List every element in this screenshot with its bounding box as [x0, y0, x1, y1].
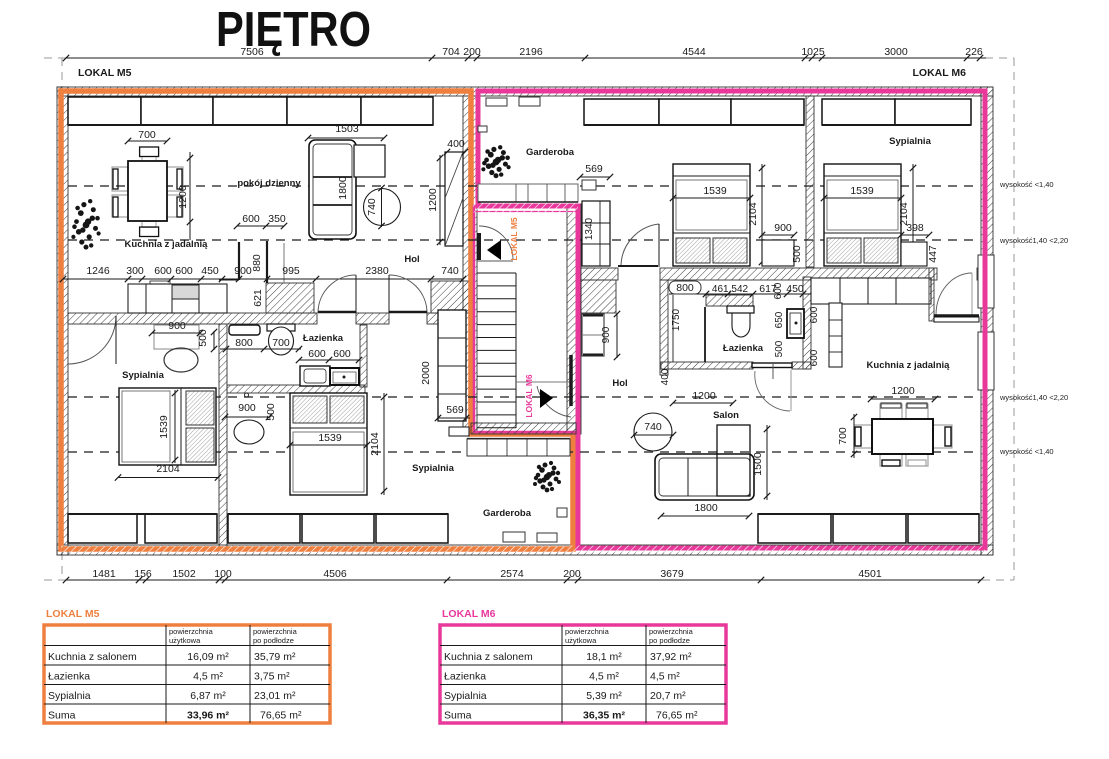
svg-text:2196: 2196 — [519, 46, 543, 58]
svg-text:400: 400 — [447, 138, 465, 150]
svg-text:156: 156 — [134, 568, 152, 580]
svg-text:LOKAL M6: LOKAL M6 — [913, 67, 967, 79]
svg-text:3679: 3679 — [660, 568, 684, 580]
svg-text:Sypialnia: Sypialnia — [122, 370, 164, 381]
svg-text:700: 700 — [837, 427, 849, 445]
svg-text:2574: 2574 — [500, 568, 524, 580]
svg-text:1539: 1539 — [158, 415, 170, 439]
svg-text:Kuchnia z jadalnią: Kuchnia z jadalnią — [867, 360, 951, 371]
svg-text:2104: 2104 — [747, 202, 759, 226]
svg-text:880: 880 — [251, 254, 263, 272]
svg-text:2104: 2104 — [369, 432, 381, 456]
svg-text:wysokość1,40 <2,20: wysokość1,40 <2,20 — [999, 393, 1068, 402]
svg-text:PIĘTRO: PIĘTRO — [216, 3, 371, 57]
svg-text:1025: 1025 — [801, 46, 825, 58]
svg-text:Suma: Suma — [444, 710, 472, 722]
svg-text:1500: 1500 — [752, 452, 764, 476]
svg-text:1481: 1481 — [92, 568, 116, 580]
svg-text:Suma: Suma — [48, 710, 76, 722]
svg-text:4,5 m²: 4,5 m² — [193, 671, 223, 683]
svg-text:1503: 1503 — [335, 123, 359, 135]
svg-text:1539: 1539 — [318, 432, 342, 444]
svg-text:600: 600 — [175, 265, 193, 277]
svg-text:704: 704 — [442, 46, 460, 58]
svg-text:powierzchnia: powierzchnia — [253, 627, 298, 636]
svg-text:900: 900 — [601, 326, 612, 343]
svg-text:wysokość <1,40: wysokość <1,40 — [999, 180, 1054, 189]
svg-text:500: 500 — [265, 403, 277, 421]
svg-text:447: 447 — [927, 245, 939, 263]
svg-text:powierzchnia: powierzchnia — [649, 627, 694, 636]
svg-text:450: 450 — [201, 265, 219, 277]
svg-text:36,35 m²: 36,35 m² — [583, 710, 626, 722]
svg-text:900: 900 — [234, 265, 252, 277]
svg-text:740: 740 — [441, 265, 459, 277]
svg-text:Łazienka: Łazienka — [303, 333, 344, 344]
svg-text:wysokość1,40 <2,20: wysokość1,40 <2,20 — [999, 236, 1068, 245]
svg-text:200: 200 — [563, 568, 581, 580]
svg-text:po podłodze: po podłodze — [253, 636, 294, 645]
svg-text:LOKAL M5: LOKAL M5 — [509, 217, 519, 261]
svg-text:35,79 m²: 35,79 m² — [254, 651, 296, 663]
svg-text:400: 400 — [660, 368, 671, 385]
svg-text:500: 500 — [774, 340, 785, 357]
svg-text:Łazienka: Łazienka — [48, 671, 90, 683]
svg-text:500: 500 — [197, 329, 209, 347]
svg-text:740: 740 — [644, 421, 662, 433]
svg-text:pokój dzienny: pokój dzienny — [237, 178, 301, 189]
svg-text:1246: 1246 — [86, 265, 110, 277]
svg-text:Sypialnia: Sypialnia — [48, 690, 91, 702]
svg-text:Hol: Hol — [612, 378, 627, 389]
svg-text:7506: 7506 — [240, 46, 264, 58]
svg-text:37,92 m²: 37,92 m² — [650, 651, 692, 663]
svg-text:Garderoba: Garderoba — [526, 147, 575, 158]
svg-text:5,39 m²: 5,39 m² — [586, 690, 622, 702]
svg-text:3000: 3000 — [884, 46, 908, 58]
svg-text:po podłodze: po podłodze — [649, 636, 690, 645]
svg-text:1340: 1340 — [584, 217, 595, 240]
svg-text:100: 100 — [214, 568, 232, 580]
svg-text:500: 500 — [791, 245, 803, 263]
svg-text:800: 800 — [676, 282, 694, 294]
svg-text:Łazienka: Łazienka — [723, 343, 764, 354]
svg-text:4544: 4544 — [682, 46, 706, 58]
svg-text:350: 350 — [268, 213, 286, 225]
svg-text:300: 300 — [126, 265, 144, 277]
svg-text:1200: 1200 — [177, 185, 189, 209]
svg-text:1750: 1750 — [671, 308, 682, 331]
svg-text:Łazienka: Łazienka — [444, 671, 486, 683]
svg-text:600: 600 — [242, 213, 260, 225]
svg-text:569: 569 — [446, 404, 464, 416]
svg-text:LOKAL M6: LOKAL M6 — [442, 608, 496, 620]
svg-text:1200: 1200 — [427, 188, 439, 212]
svg-text:1502: 1502 — [172, 568, 196, 580]
svg-text:Garderoba: Garderoba — [483, 508, 532, 519]
svg-text:wysokość <1,40: wysokość <1,40 — [999, 447, 1054, 456]
svg-text:800: 800 — [235, 337, 253, 349]
svg-text:Kuchnia z salonem: Kuchnia z salonem — [48, 651, 137, 663]
svg-text:33,96 m²: 33,96 m² — [187, 710, 230, 722]
svg-text:23,01 m²: 23,01 m² — [254, 690, 296, 702]
svg-text:20,7 m²: 20,7 m² — [650, 690, 686, 702]
svg-text:600: 600 — [773, 282, 784, 299]
svg-text:3,75 m²: 3,75 m² — [254, 671, 290, 683]
svg-text:użytkowa: użytkowa — [565, 636, 597, 645]
svg-text:2000: 2000 — [420, 361, 432, 385]
svg-text:900: 900 — [168, 320, 186, 332]
svg-text:użytkowa: użytkowa — [169, 636, 201, 645]
svg-text:1800: 1800 — [337, 176, 349, 200]
svg-text:226: 226 — [965, 46, 983, 58]
svg-text:1539: 1539 — [703, 185, 727, 197]
svg-text:powierzchnia: powierzchnia — [565, 627, 610, 636]
svg-text:16,09 m²: 16,09 m² — [187, 651, 229, 663]
svg-text:700: 700 — [138, 129, 156, 141]
svg-text:76,65 m²: 76,65 m² — [260, 710, 302, 722]
svg-text:700: 700 — [272, 337, 290, 349]
svg-text:LOKAL M5: LOKAL M5 — [46, 608, 100, 620]
svg-text:1200: 1200 — [692, 390, 716, 402]
svg-text:650: 650 — [774, 311, 785, 328]
svg-text:Sypialnia: Sypialnia — [444, 690, 487, 702]
svg-text:2104: 2104 — [156, 463, 180, 475]
svg-text:Sypialnia: Sypialnia — [412, 463, 454, 474]
svg-text:740: 740 — [366, 198, 378, 216]
svg-text:398: 398 — [906, 222, 924, 234]
svg-text:4,5 m²: 4,5 m² — [650, 671, 680, 683]
svg-text:2380: 2380 — [365, 265, 389, 277]
svg-text:powierzchnia: powierzchnia — [169, 627, 214, 636]
svg-text:Sypialnia: Sypialnia — [889, 136, 931, 147]
svg-text:600: 600 — [333, 348, 351, 360]
svg-text:461,542: 461,542 — [712, 284, 749, 295]
svg-text:1200: 1200 — [891, 385, 915, 397]
svg-text:Salon: Salon — [713, 410, 739, 421]
svg-text:569: 569 — [585, 163, 603, 175]
svg-text:LOKAL M6: LOKAL M6 — [524, 374, 534, 418]
svg-text:LOKAL M5: LOKAL M5 — [78, 67, 132, 79]
svg-text:4506: 4506 — [323, 568, 347, 580]
svg-text:900: 900 — [774, 222, 792, 234]
svg-text:18,1 m²: 18,1 m² — [586, 651, 622, 663]
svg-text:621: 621 — [252, 289, 264, 307]
svg-text:600: 600 — [809, 349, 820, 366]
svg-text:600: 600 — [308, 348, 326, 360]
svg-text:Hol: Hol — [404, 254, 419, 265]
svg-text:1800: 1800 — [694, 502, 718, 514]
svg-text:76,65 m²: 76,65 m² — [656, 710, 698, 722]
svg-text:Kuchnia z jadalnią: Kuchnia z jadalnią — [125, 239, 209, 250]
svg-text:600: 600 — [154, 265, 172, 277]
svg-text:4,5 m²: 4,5 m² — [589, 671, 619, 683]
svg-text:6,87 m²: 6,87 m² — [190, 690, 226, 702]
svg-text:995: 995 — [282, 265, 300, 277]
svg-text:Kuchnia z salonem: Kuchnia z salonem — [444, 651, 533, 663]
svg-text:200: 200 — [463, 46, 481, 58]
svg-text:600: 600 — [809, 306, 820, 323]
svg-text:1539: 1539 — [850, 185, 874, 197]
svg-text:450: 450 — [786, 283, 804, 295]
svg-text:900: 900 — [238, 402, 256, 414]
svg-text:4501: 4501 — [858, 568, 882, 580]
